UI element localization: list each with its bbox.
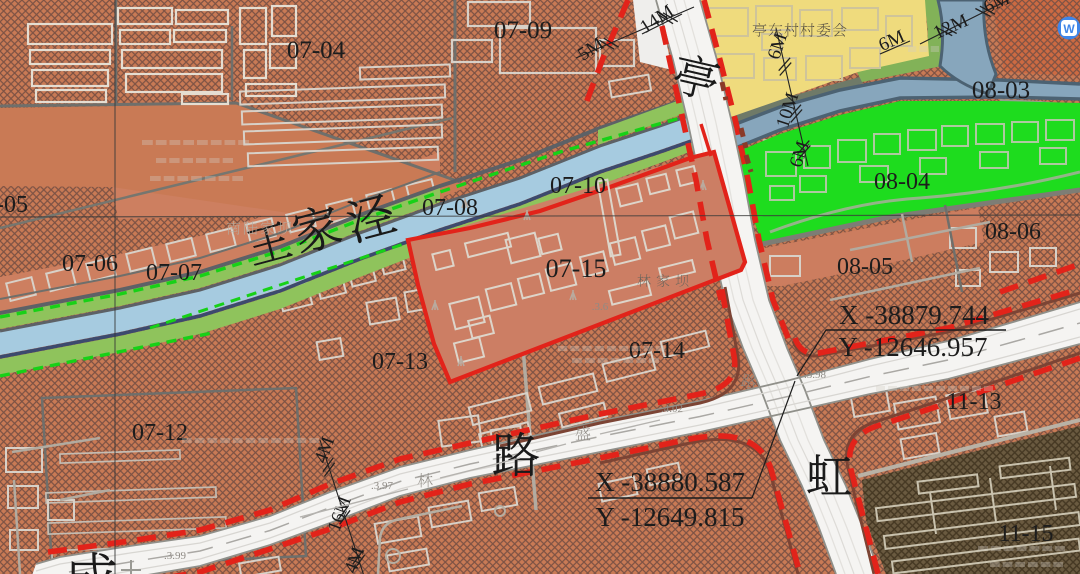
- svg-text:07-15: 07-15: [546, 254, 607, 283]
- svg-text:11-15: 11-15: [998, 521, 1053, 547]
- svg-text:07-10: 07-10: [550, 173, 606, 199]
- svg-text:Y -12649.815: Y -12649.815: [596, 502, 745, 532]
- svg-text:X -38879.744: X -38879.744: [839, 300, 989, 330]
- svg-text:.3.6: .3.6: [592, 301, 609, 313]
- svg-text:07-13: 07-13: [372, 349, 428, 375]
- svg-text:.3.97: .3.97: [371, 480, 394, 492]
- svg-text:07-12: 07-12: [132, 420, 188, 446]
- svg-text:Y -12646.957: Y -12646.957: [839, 332, 988, 362]
- svg-text:08-03: 08-03: [972, 77, 1030, 104]
- svg-text:W: W: [1063, 22, 1075, 36]
- svg-text:11-13: 11-13: [946, 389, 1001, 415]
- svg-text:07-09: 07-09: [494, 17, 552, 44]
- svg-text:.3.99: .3.99: [164, 550, 187, 562]
- svg-text:07-05: 07-05: [0, 192, 28, 218]
- svg-text:X -38880.587: X -38880.587: [595, 467, 745, 497]
- svg-text:08-04: 08-04: [874, 169, 930, 195]
- svg-text:07-08: 07-08: [422, 195, 478, 221]
- svg-text:.4.02: .4.02: [661, 403, 683, 415]
- svg-text:07-07: 07-07: [146, 260, 202, 286]
- svg-text:08-05: 08-05: [837, 254, 893, 280]
- svg-text:07-06: 07-06: [62, 251, 118, 277]
- svg-text:.3.98: .3.98: [804, 369, 827, 381]
- svg-text:08-06: 08-06: [985, 219, 1041, 245]
- svg-text:07-04: 07-04: [287, 37, 346, 64]
